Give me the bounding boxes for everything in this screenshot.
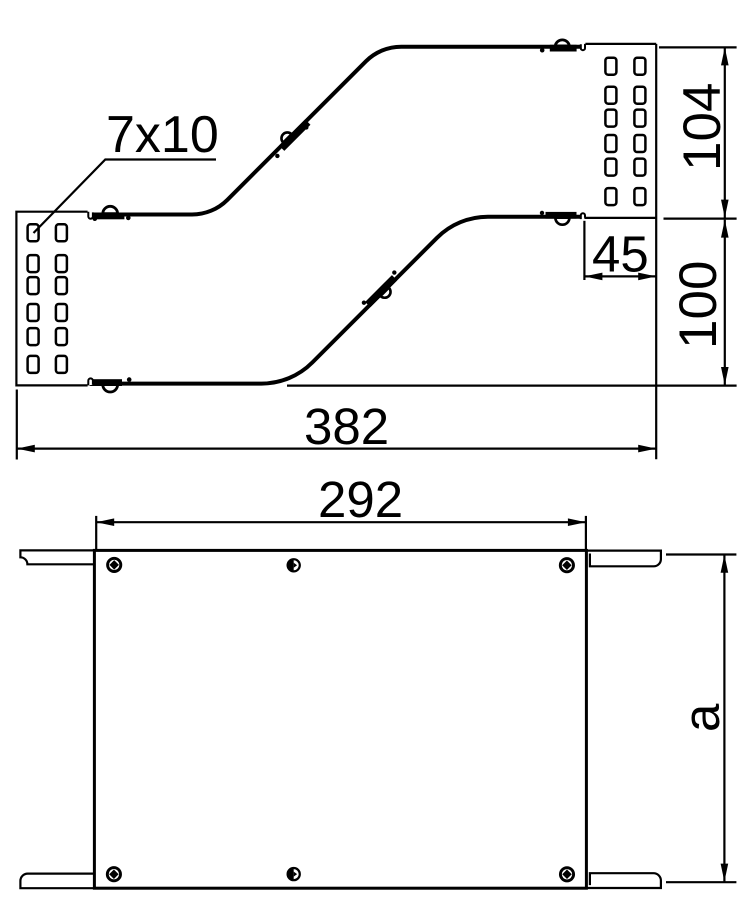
svg-text:292: 292 [318, 471, 403, 528]
svg-text:382: 382 [304, 398, 389, 455]
svg-text:45: 45 [592, 225, 649, 282]
svg-text:a: a [673, 703, 730, 732]
svg-text:7x10: 7x10 [106, 106, 219, 164]
svg-text:104: 104 [673, 83, 732, 171]
svg-text:100: 100 [669, 261, 728, 349]
